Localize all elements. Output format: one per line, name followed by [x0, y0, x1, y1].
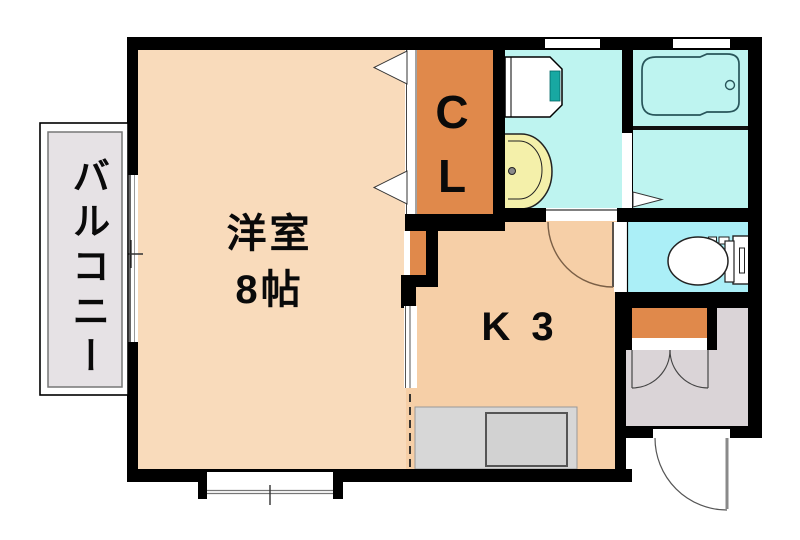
balcony-inner: [48, 132, 122, 387]
wall-wash-bath-bottom: [617, 208, 762, 222]
balcony: [40, 123, 128, 395]
window-top-bathroom: [673, 39, 730, 48]
wall-column-step-v: [401, 287, 416, 308]
washing-machine-tap: [550, 71, 560, 101]
wall-column-right: [426, 216, 438, 282]
wall-closet-bottom: [405, 214, 505, 231]
toilet-tank: [733, 236, 749, 284]
wall-column-step-h: [401, 275, 438, 287]
window-bottom-bay: [207, 472, 333, 505]
wall-wash-bath-divider: [622, 37, 633, 133]
counter-sink: [486, 413, 567, 466]
closet-floor: [417, 50, 493, 214]
floor-plan-drawing: [0, 0, 800, 540]
wall-toilet-bottom: [615, 292, 762, 308]
wall-top: [127, 37, 762, 50]
toilet: [668, 236, 749, 285]
wall-wash-bottom-left: [505, 208, 546, 222]
kitchen-counter: [415, 407, 577, 469]
front-door-opening: [653, 429, 730, 438]
shoe-cabinet: [632, 308, 707, 338]
wall-window-jamb-left: [198, 469, 207, 499]
front-door-arc: [655, 438, 727, 510]
floor-plan-page: { "labels": { "balcony": "バルコニー", "weste…: [0, 0, 800, 540]
shoe-cabinet-gap: [632, 338, 707, 350]
toilet-bowl: [668, 237, 728, 285]
bath-platform-line: [633, 126, 748, 130]
window-top-washroom: [545, 39, 600, 48]
toilet-door-opening: [614, 222, 627, 292]
wall-closet-right: [493, 37, 505, 222]
pipe-space-column: [410, 231, 426, 275]
western-room-floor: [138, 50, 406, 470]
wall-shoebox-right: [707, 308, 717, 350]
wall-window-jamb-right: [333, 469, 343, 499]
wash-basin-faucet: [509, 168, 516, 175]
wall-shoebox-left: [623, 308, 632, 350]
pipe-space-gap: [404, 231, 410, 275]
wall-right: [748, 37, 762, 438]
washing-machine: [505, 57, 562, 117]
sliding-door-west-kitchen: [404, 306, 417, 388]
